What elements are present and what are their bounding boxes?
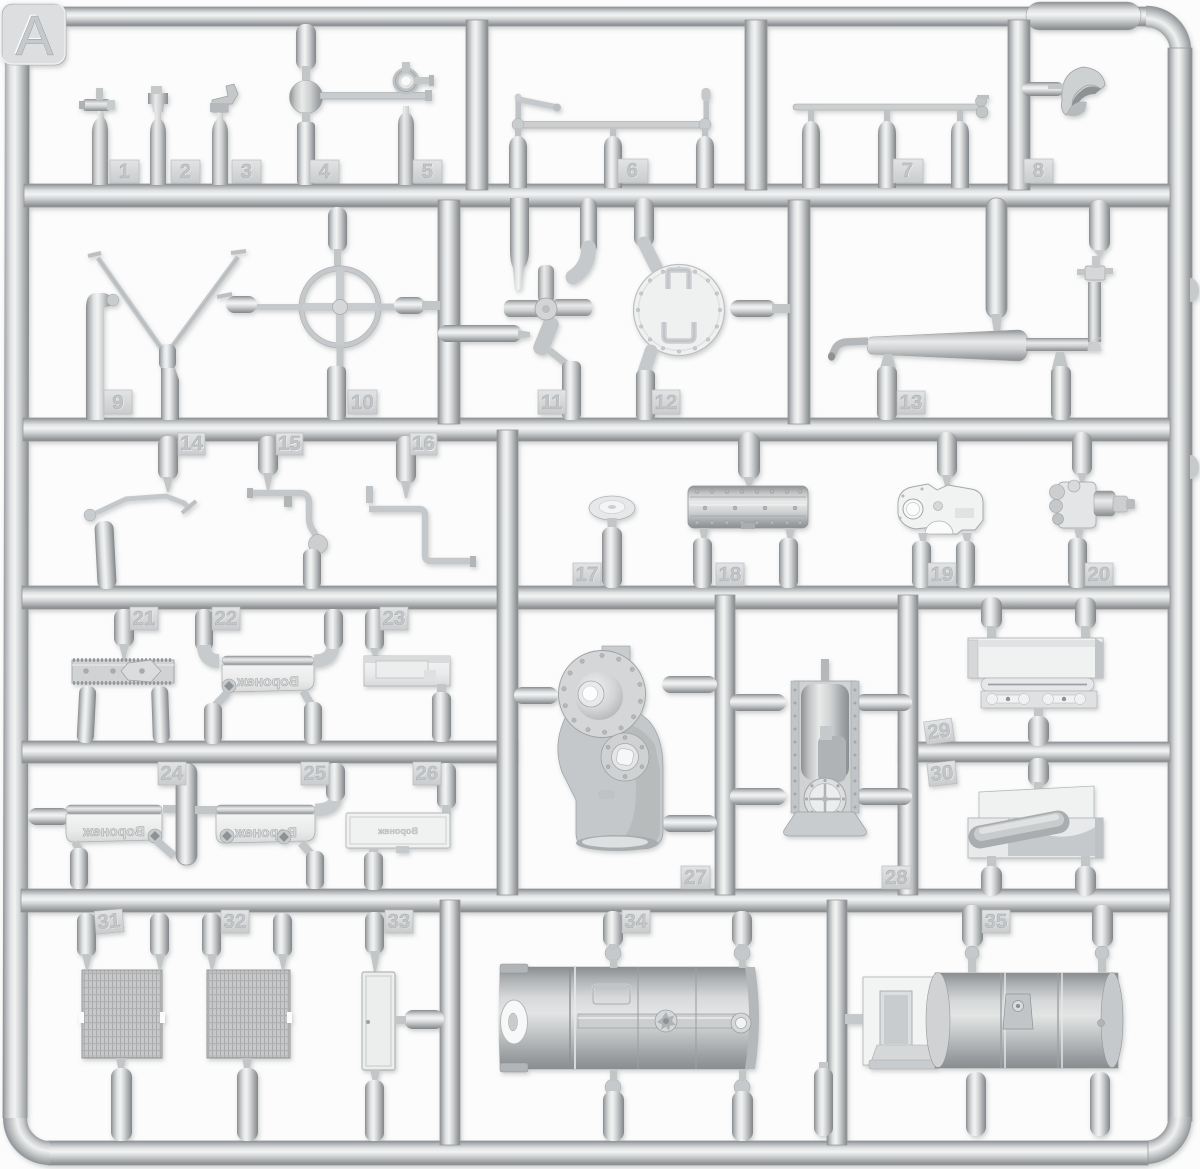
svg-text:16: 16 <box>412 432 435 455</box>
svg-text:34: 34 <box>625 910 648 933</box>
svg-text:23: 23 <box>383 607 406 630</box>
svg-text:Воронеж: Воронеж <box>82 823 145 839</box>
svg-text:13: 13 <box>900 391 923 414</box>
svg-text:32: 32 <box>224 910 247 933</box>
svg-text:25: 25 <box>304 762 327 785</box>
svg-text:Воронеж: Воронеж <box>378 826 418 836</box>
svg-text:3: 3 <box>241 160 252 183</box>
svg-text:6: 6 <box>627 159 638 182</box>
svg-text:31: 31 <box>97 909 122 934</box>
svg-text:21: 21 <box>133 607 156 630</box>
svg-text:15: 15 <box>278 432 301 455</box>
svg-text:33: 33 <box>388 910 411 933</box>
svg-text:8: 8 <box>1033 159 1044 182</box>
svg-text:14: 14 <box>180 432 203 455</box>
svg-text:4: 4 <box>319 160 331 183</box>
svg-text:29: 29 <box>926 719 952 745</box>
svg-text:11: 11 <box>541 391 563 414</box>
svg-text:20: 20 <box>1088 563 1111 586</box>
svg-text:18: 18 <box>719 563 742 586</box>
svg-text:1: 1 <box>119 160 130 183</box>
svg-text:22: 22 <box>215 607 238 630</box>
svg-text:24: 24 <box>161 762 184 785</box>
svg-text:9: 9 <box>112 391 123 414</box>
svg-text:10: 10 <box>351 391 374 414</box>
svg-text:35: 35 <box>985 910 1008 933</box>
svg-text:2: 2 <box>180 160 191 183</box>
svg-text:30: 30 <box>930 761 955 786</box>
svg-text:27: 27 <box>684 866 707 889</box>
svg-text:28: 28 <box>885 866 908 889</box>
svg-text:Воронеж: Воронеж <box>236 673 299 689</box>
svg-text:7: 7 <box>902 159 913 182</box>
svg-text:19: 19 <box>931 563 954 586</box>
svg-text:26: 26 <box>416 762 439 785</box>
svg-text:5: 5 <box>422 160 433 183</box>
svg-text:A: A <box>16 4 54 67</box>
svg-text:17: 17 <box>576 563 599 586</box>
svg-text:12: 12 <box>655 391 678 414</box>
